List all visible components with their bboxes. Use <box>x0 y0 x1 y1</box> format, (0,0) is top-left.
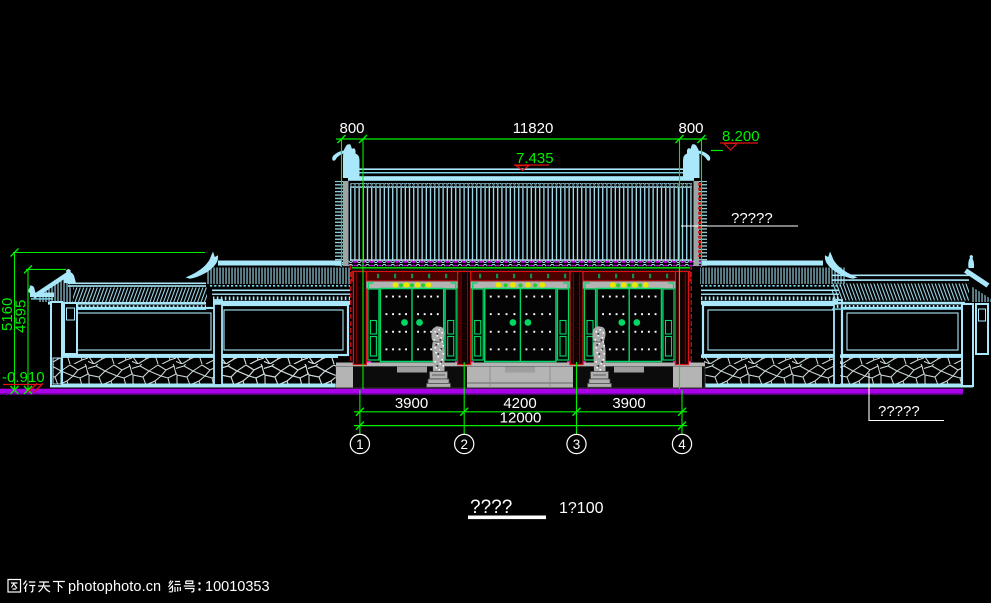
svg-text:4595: 4595 <box>13 300 30 333</box>
svg-text:2: 2 <box>460 437 468 452</box>
svg-text:?????: ????? <box>878 403 920 420</box>
svg-text:?????: ????? <box>731 210 773 227</box>
svg-text:4: 4 <box>678 437 686 452</box>
svg-text:800: 800 <box>339 120 364 137</box>
svg-text:10010353: 10010353 <box>205 579 270 595</box>
svg-text:12000: 12000 <box>500 410 542 427</box>
svg-text:800: 800 <box>678 120 703 137</box>
svg-text:3900: 3900 <box>395 395 428 412</box>
svg-text:1: 1 <box>356 437 364 452</box>
svg-text:3900: 3900 <box>612 395 645 412</box>
svg-text:11820: 11820 <box>513 120 554 137</box>
svg-text:photophoto.cn: photophoto.cn <box>68 579 161 595</box>
svg-text:1?100: 1?100 <box>559 500 604 517</box>
svg-text:-0.910: -0.910 <box>2 369 45 386</box>
svg-text:3: 3 <box>573 437 581 452</box>
svg-text:????: ???? <box>470 497 512 518</box>
